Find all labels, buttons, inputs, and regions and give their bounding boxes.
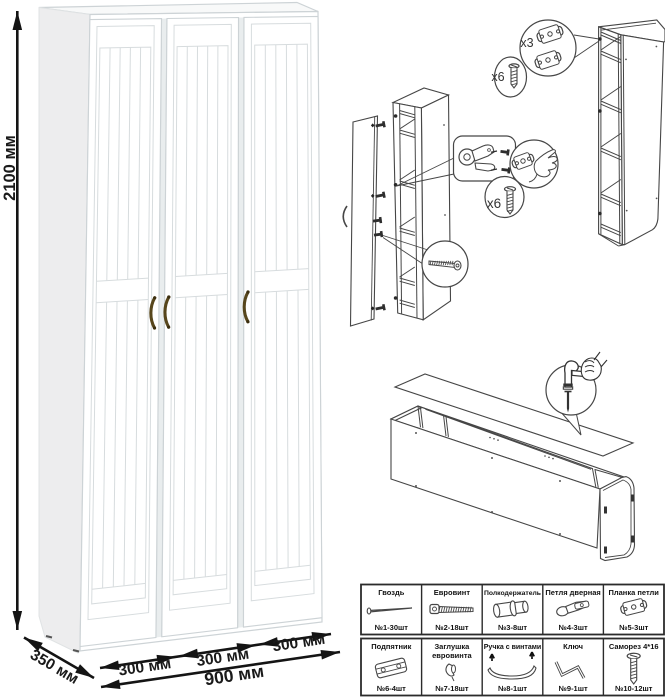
svg-text:№8-1шт: №8-1шт [498,684,527,693]
svg-text:Саморез 4*16: Саморез 4*16 [609,642,659,651]
svg-text:№9-1шт: №9-1шт [559,684,588,693]
svg-text:Полкодержатель: Полкодержатель [484,590,541,597]
svg-text:№2-18шт: №2-18шт [435,623,469,632]
svg-text:евровинта: евровинта [432,651,472,660]
svg-text:x6: x6 [487,196,501,211]
svg-text:Заглушка: Заглушка [434,642,470,651]
svg-text:Ручка с винтами: Ручка с винтами [484,644,541,651]
svg-text:№5-3шт: №5-3шт [619,623,648,632]
svg-text:Подпятник: Подпятник [371,642,411,651]
svg-text:№7-18шт: №7-18шт [435,684,469,693]
svg-text:x3: x3 [520,36,533,50]
svg-text:x6: x6 [491,70,504,84]
svg-text:№6-4шт: №6-4шт [377,684,406,693]
svg-text:Гвоздь: Гвоздь [378,588,405,597]
svg-text:Петля дверная: Петля дверная [545,588,600,597]
svg-text:№1-30шт: №1-30шт [375,623,409,632]
svg-text:№4-3шт: №4-3шт [559,623,588,632]
svg-text:Ключ: Ключ [563,642,583,651]
svg-text:Планка петли: Планка петли [608,588,659,597]
svg-text:Евровинт: Евровинт [434,588,471,597]
svg-text:№3-8шт: №3-8шт [498,623,527,632]
svg-text:2100 мм: 2100 мм [1,135,19,201]
svg-text:№10-12шт: №10-12шт [615,684,653,693]
